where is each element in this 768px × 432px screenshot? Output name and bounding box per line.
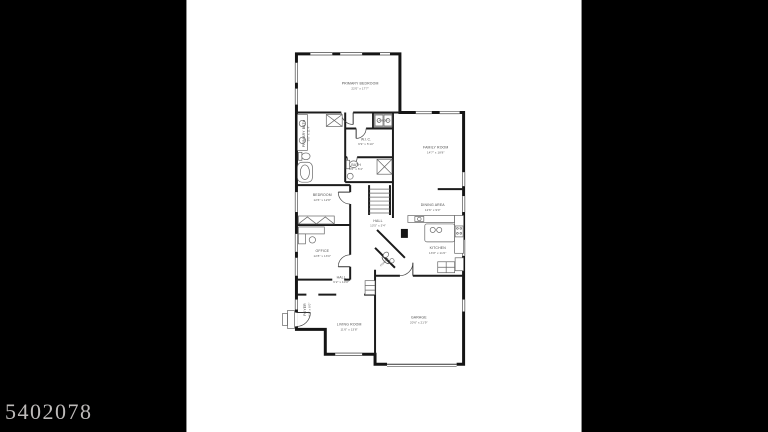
- closet-bifold: [298, 216, 334, 224]
- room-label-wic: W.I.C.: [361, 137, 371, 141]
- room-dims-bath: 8'6" x 5'4": [349, 167, 363, 171]
- room-dims-hall-lower: 6'2" x 10'8": [333, 280, 349, 284]
- room-label-primary-bedroom: PRIMARY BEDROOM: [342, 82, 379, 86]
- room-label-garage: GARAGE: [411, 315, 427, 319]
- bathtub: [297, 162, 312, 182]
- room-label-kitchen: KITCHEN: [430, 246, 447, 250]
- stairs: [369, 189, 390, 213]
- room-dims-garage: 20'6" x 21'9": [410, 320, 428, 324]
- entry-steps: [283, 311, 295, 329]
- room-dims-dining-area: 12'6" x 9'0": [425, 208, 441, 212]
- room-label-foyer: FOYER: [303, 303, 307, 316]
- floorplan-drawing: PRIMARY BEDROOM 22'0" x 17'7" FAMILY ROO…: [187, 0, 581, 432]
- room-label-hall-lower: HALL: [337, 276, 346, 280]
- room-dims-primary-bedroom: 22'0" x 17'7": [351, 87, 369, 91]
- room-dims-family-room: 14'7" x 18'8": [427, 150, 445, 154]
- room-label-hall-upper: HALL: [373, 219, 382, 223]
- appliance-block: [438, 262, 455, 273]
- floorplan-photo: PRIMARY BEDROOM 22'0" x 17'7" FAMILY ROO…: [186, 0, 582, 432]
- room-dims-hall-upper: 13'5" x 3'4": [370, 223, 386, 227]
- mls-number-watermark: 5402078: [5, 399, 93, 425]
- kitchen-island: [425, 224, 455, 242]
- toilet: [298, 152, 310, 160]
- powder-sink: [390, 259, 394, 263]
- room-label-living-room: LIVING ROOM: [337, 322, 362, 326]
- stove: [455, 226, 463, 237]
- room-dims-foyer: 6'4" x 8'0": [307, 302, 311, 316]
- shower: [326, 115, 342, 127]
- chase: [401, 229, 408, 238]
- sink: [347, 173, 353, 179]
- room-dims-primary-bath: 9'6" x 11'4": [306, 126, 310, 142]
- room-label-primary-bath: PRIMARY BATH: [302, 119, 306, 147]
- room-label-dining-area: DINING AREA: [421, 203, 446, 207]
- desk: [298, 227, 324, 244]
- room-label-family-room: FAMILY ROOM: [423, 145, 448, 149]
- room-label-office: OFFICE: [316, 249, 330, 253]
- room-dims-bedroom: 12'6" x 12'8": [314, 198, 332, 202]
- refrigerator: [455, 258, 463, 271]
- room-dims-office: 12'8" x 13'0": [314, 254, 332, 258]
- pantry-closet: [365, 281, 375, 295]
- linen-closet: [377, 159, 392, 174]
- room-dims-kitchen: 13'8" x 11'0": [429, 251, 446, 255]
- room-dims-wic: 9'9" x 5'10": [358, 142, 374, 146]
- room-label-laundry: LAUNDRY: [377, 119, 389, 122]
- room-label-bedroom: BEDROOM: [313, 193, 332, 197]
- room-dims-living-room: 11'6" x 13'8": [340, 327, 357, 331]
